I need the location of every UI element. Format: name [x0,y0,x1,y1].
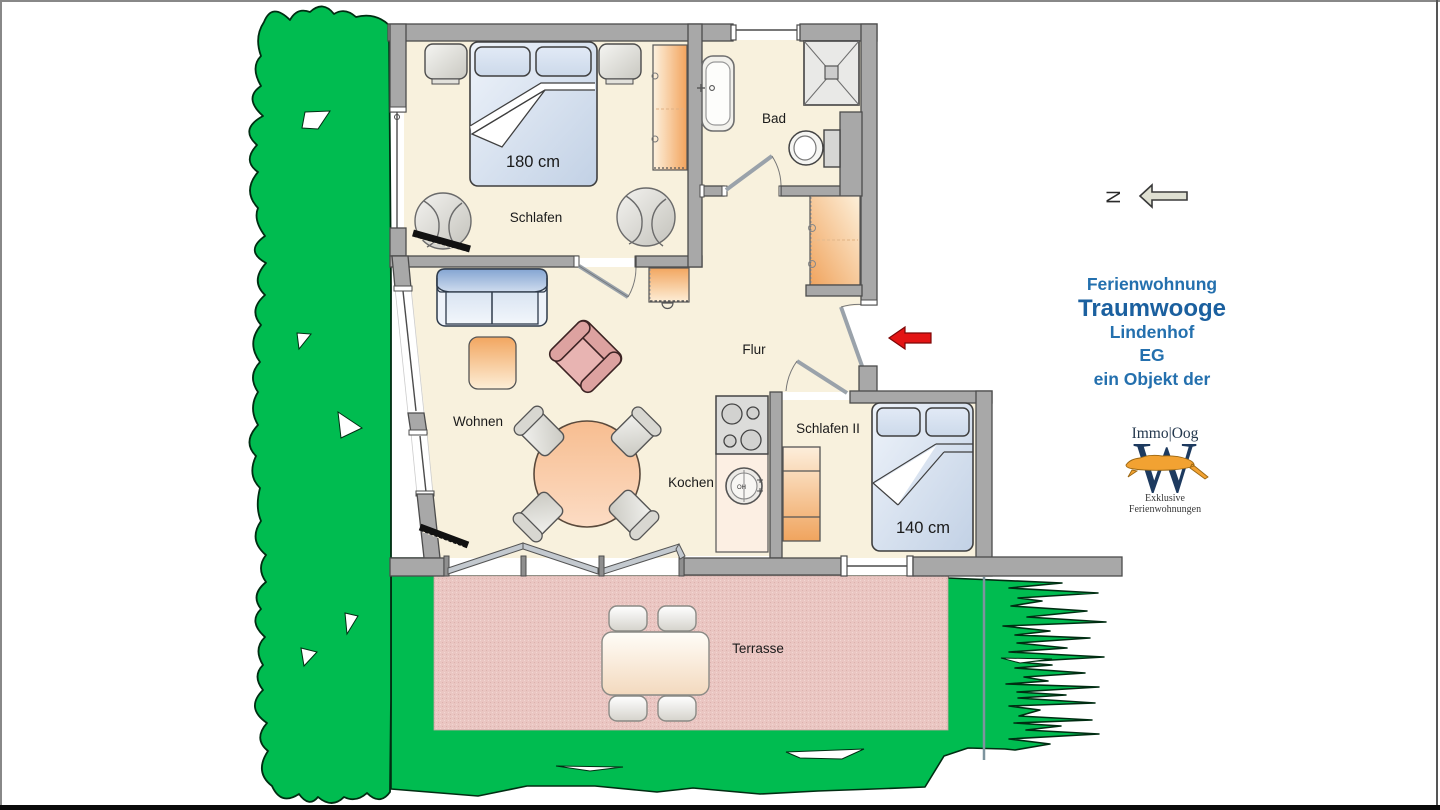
svg-text:Wohnen: Wohnen [453,414,503,429]
svg-text:Flur: Flur [742,342,766,357]
svg-text:OH: OH [737,485,746,491]
svg-text:Schlafen: Schlafen [510,210,563,225]
svg-text:Traumwooge: Traumwooge [1078,295,1226,322]
svg-text:Kochen: Kochen [668,475,714,490]
svg-text:Bad: Bad [762,111,786,126]
svg-text:N: N [1104,190,1125,204]
svg-text:Ferienwohnung: Ferienwohnung [1087,274,1217,294]
svg-text:Schlafen II: Schlafen II [796,421,860,436]
svg-text:180 cm: 180 cm [506,153,560,171]
svg-text:Ferienwohnungen: Ferienwohnungen [1129,504,1201,515]
svg-text:Exklusive: Exklusive [1145,493,1186,504]
svg-text:Terrasse: Terrasse [732,641,784,656]
svg-text:140 cm: 140 cm [896,519,950,537]
svg-text:ein Objekt der: ein Objekt der [1094,369,1211,389]
svg-text:EG: EG [1139,345,1164,365]
svg-text:Lindenhof: Lindenhof [1110,322,1195,342]
